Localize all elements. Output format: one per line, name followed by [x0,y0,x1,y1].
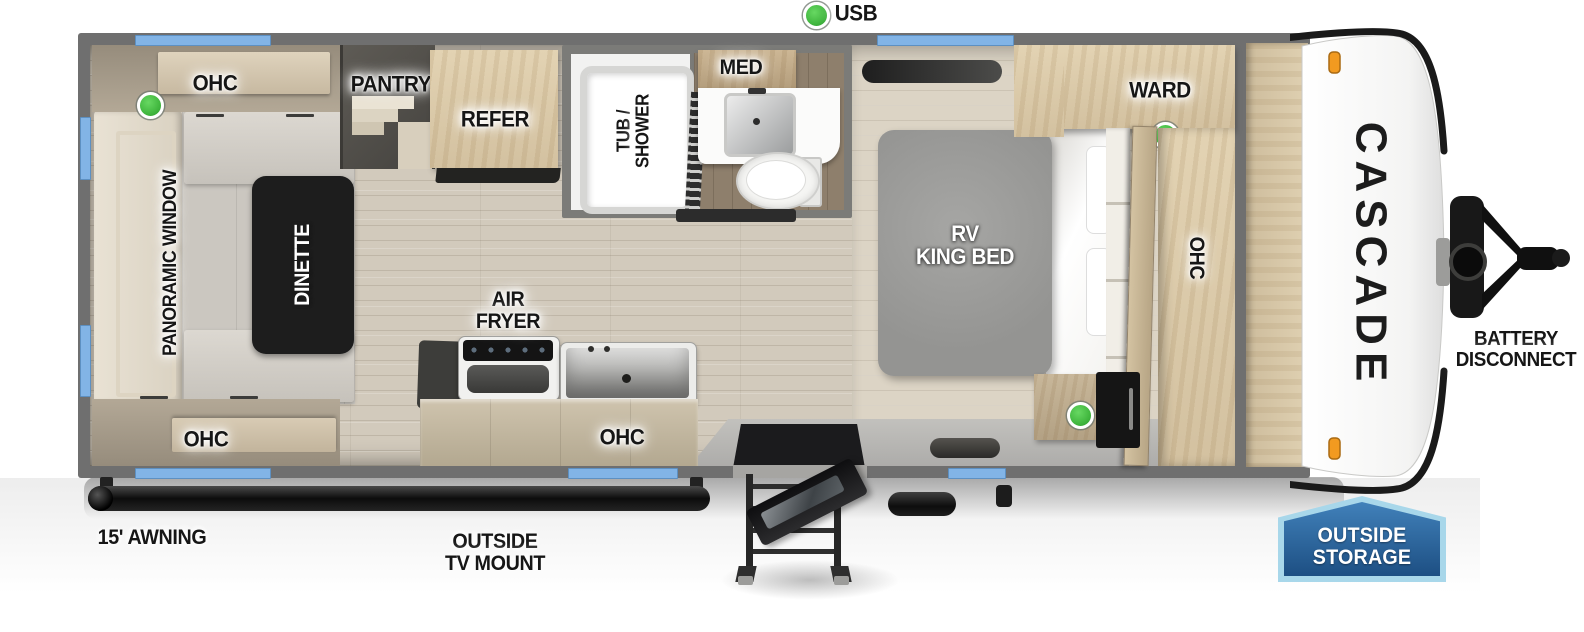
window-bottom-kitchen [568,468,678,479]
underbody-cylinder [888,492,956,516]
kitchen-sink-basin [566,348,689,398]
label-panoramic-window: PANORAMIC WINDOW [161,170,181,356]
hitch-arm-upper [1482,204,1522,260]
floorplan-canvas: USB DINETTE PANORAMIC WINDOW OHC OHC PAN… [0,0,1584,632]
front-cap: CASCADE [1290,26,1584,496]
bath-threshold [676,209,796,222]
label-tub-shower: TUB / SHOWER [614,94,651,168]
label-battery-line1: BATTERY [1456,329,1577,350]
label-tub-shower-line1: TUB / [614,94,633,168]
toilet-seat [746,160,806,200]
green-dot-bench [1067,402,1094,429]
range-oven-front [467,365,549,393]
label-tub-shower-line2: SHOWER [633,94,652,168]
usb-indicator-dot [803,2,830,29]
awning-end-cap [88,486,113,511]
step-foot-cap-right [834,576,849,585]
wardrobe-arm [1014,45,1064,137]
marker-light-top [1329,52,1340,73]
window-bottom-bedroom [948,468,1006,479]
dinette-bench-front [184,112,354,184]
bedroom-black-cabinet [1096,372,1140,448]
label-ward: WARD [1129,80,1191,103]
label-ohc-kitchen: OHC [600,427,645,450]
pantry-step-1 [352,96,414,109]
label-ohc-top-left: OHC [193,73,238,96]
bath-sink-drain [753,118,760,125]
bracket-mark [140,396,168,399]
window-top-bedroom [877,35,1014,46]
hitch-arm-lower [1482,256,1522,310]
label-awning: 15' AWNING [98,527,207,549]
bracket-mark [230,396,258,399]
kitchen-counter [420,399,698,466]
label-bed-line2: KING BED [916,246,1014,269]
label-refer: REFER [461,109,529,132]
hitch-coupler-tip [1552,249,1570,267]
label-bed-line1: RV [916,223,1014,246]
label-ohc-bottom-left: OHC [184,429,229,452]
label-med: MED [720,57,763,79]
window-rear-lower [80,325,91,397]
label-dinette: DINETTE [292,224,314,306]
kitchen-faucet [588,346,594,352]
underbody-pipe [996,485,1012,507]
ohc-top-shelf [158,52,330,94]
marker-light-bottom [1329,438,1340,459]
bracket-mark [196,114,224,117]
range-burners [466,344,550,357]
bracket-mark [286,114,314,117]
label-tv-line1: OUTSIDE [445,531,545,553]
awning-tube [88,486,710,511]
label-air-fryer-line1: AIR [476,289,540,311]
label-air-fryer: AIR FRYER [476,289,540,333]
black-cabinet-handle [1129,388,1133,430]
label-usb: USB [835,3,878,26]
label-storage-line1: OUTSIDE [1313,525,1412,547]
step-rung-4 [753,549,834,554]
hitch-jack-hub [1451,245,1485,279]
green-dot-living [137,92,164,119]
refrigerator-base [435,168,561,183]
label-battery-line2: DISCONNECT [1456,350,1577,371]
pantry-step-3 [352,122,384,135]
label-battery-disconnect: BATTERY DISCONNECT [1456,329,1577,371]
label-outside-tv-mount: OUTSIDE TV MOUNT [445,531,545,575]
cap-hitch-notch [1436,238,1450,286]
bedroom-tv-bar [862,60,1002,83]
label-ohc-bedroom: OHC [1185,237,1207,280]
pantry-floor [398,122,432,169]
window-rear-upper [80,117,91,180]
label-air-fryer-line2: FRYER [476,311,540,333]
label-storage-line2: STORAGE [1313,547,1412,569]
floor-vent-bar [930,438,1000,458]
window-bottom-left [135,468,271,479]
step-foot-cap-left [738,576,753,585]
label-pantry: PANTRY [351,74,431,97]
pantry-step-2 [352,109,398,122]
window-top-left [135,35,271,46]
label-outside-storage: OUTSIDE STORAGE [1313,525,1412,569]
bath-faucet [748,88,766,94]
label-tv-line2: TV MOUNT [445,553,545,575]
ohc-column-bedroom [1158,128,1235,466]
label-rv-king-bed: RV KING BED [916,223,1014,269]
bath-sink [724,93,796,157]
kitchen-sink-drain [622,374,631,383]
brand-logo: CASCADE [1347,122,1396,389]
